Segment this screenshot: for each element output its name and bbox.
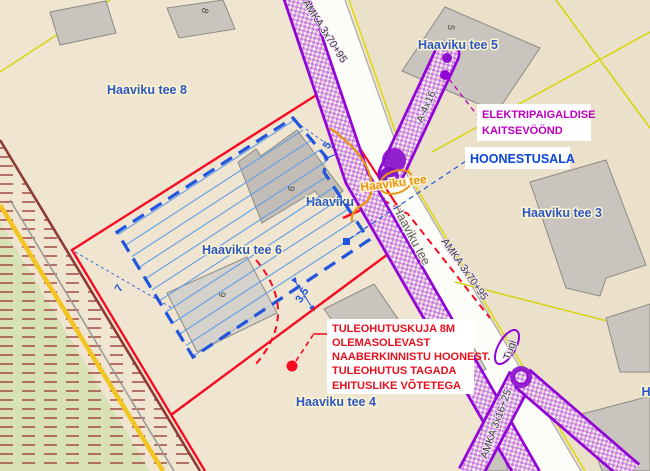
tuleohutus-line5: EHITUSLIKE VÕTETEGA <box>332 379 461 392</box>
cable-end-node <box>442 53 452 63</box>
tuleohutus-line1: TULEOHUTUSKUJA 8M <box>332 323 455 335</box>
hoonestusala-text: HOONESTUSALA <box>470 152 575 166</box>
kaitsevoond-line2: KAITSEVÖÖND <box>482 124 563 137</box>
kaitsevoond-anchor-dot <box>440 70 450 80</box>
kaitsevoond-line1: ELEKTRIPAIGALDISE <box>482 109 595 121</box>
parcel-label-haaviku-tee-8: Haaviku tee 8 <box>107 83 187 97</box>
parcel-label-clipped: H <box>641 385 650 399</box>
site-plan-screenshot: 8 5 9 9 Haaviku tee 6 5 7 3,5 <box>0 0 650 471</box>
annotation-kaitsevoond: ELEKTRIPAIGALDISE KAITSEVÖÖND <box>477 104 595 141</box>
parcel-label-haaviku-tee-3: Haaviku tee 3 <box>522 206 602 220</box>
tuleohutus-line2: OLEMASOLEVAST <box>332 337 430 349</box>
annotation-hoonestusala: HOONESTUSALA <box>465 147 575 169</box>
tuleohutus-line3: NAABERKINNISTU HOONEST. <box>332 351 490 363</box>
tuleohutus-line4: TULEOHUTUS TAGADA <box>332 365 457 377</box>
annotation-tuleohutus: TULEOHUTUSKUJA 8M OLEMASOLEVAST NAABERKI… <box>327 319 490 394</box>
parcel-label-haaviku-tee-4: Haaviku tee 4 <box>296 395 376 409</box>
tuleohutus-anchor-dot <box>287 361 298 372</box>
cable-node-inner <box>515 371 528 384</box>
leader-anchor-square <box>343 238 350 245</box>
site-plan-map: 8 5 9 9 Haaviku tee 6 5 7 3,5 <box>0 0 650 471</box>
parcel-label-haaviku-tee-5: Haaviku tee 5 <box>418 38 498 52</box>
parcel-label-haaviku-tee-6: Haaviku tee 6 <box>202 243 282 257</box>
